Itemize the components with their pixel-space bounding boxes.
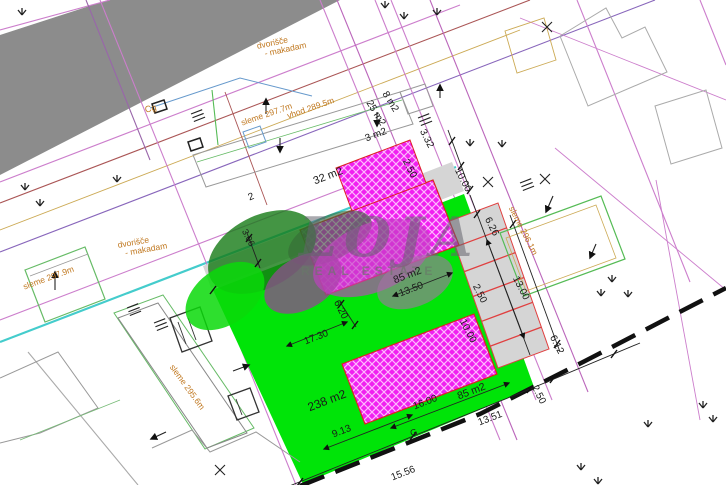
road-band xyxy=(0,0,340,175)
site-plan: LOJA REAL ESTATE 32 m2 8 m2 25 m2 3 m2 8… xyxy=(0,0,726,485)
watermark-brand: LOJA xyxy=(299,205,479,269)
